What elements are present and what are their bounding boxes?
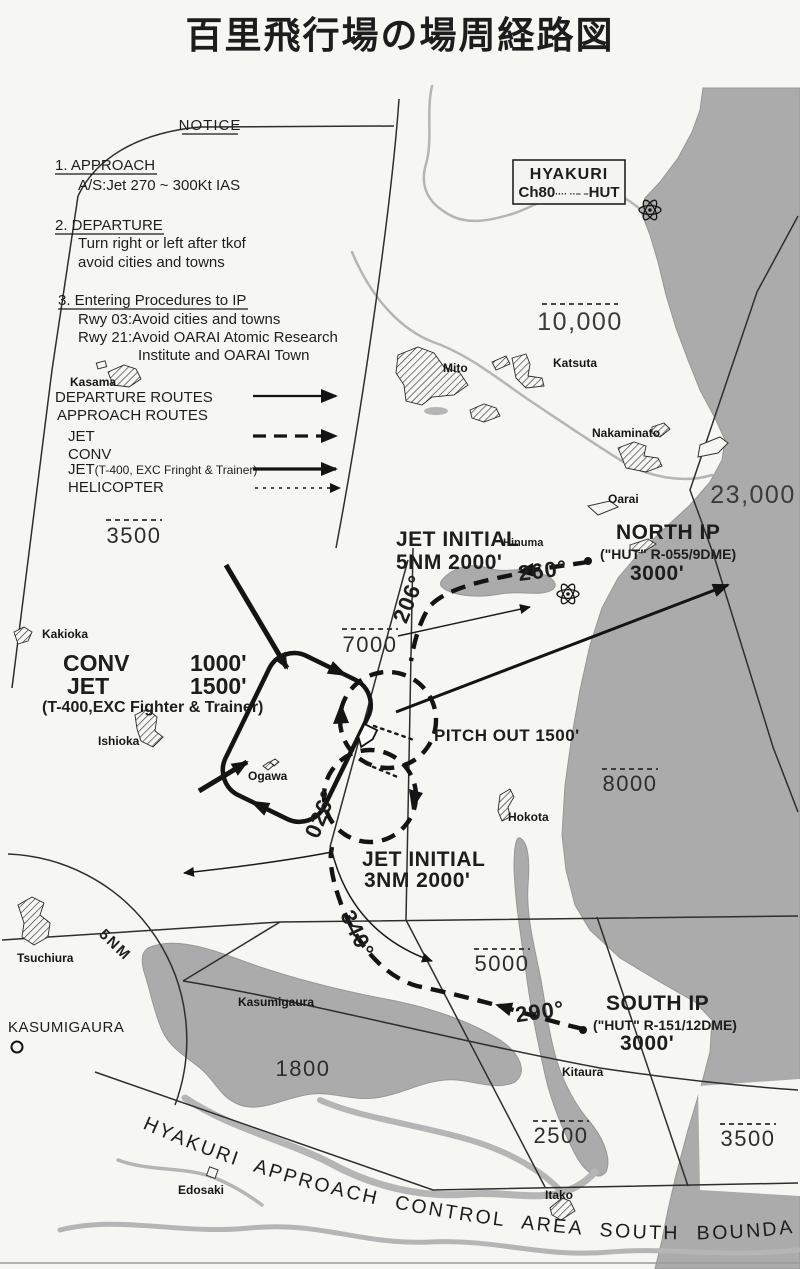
altitude-lake: 1800 bbox=[276, 1056, 331, 1081]
south-ip-fix-dot bbox=[579, 1026, 587, 1034]
north-ip-fix: ("HUT" R-055/9DME) bbox=[600, 546, 736, 562]
hinuma-label: Hinuma bbox=[503, 537, 544, 549]
navaid-name: HYAKURI bbox=[530, 166, 608, 183]
south-ip-name: SOUTH IP bbox=[606, 992, 709, 1015]
notice-entering-body2: Rwy 21:Avoid OARAI Atomic Research bbox=[78, 329, 338, 346]
katsuta-west-area bbox=[492, 356, 510, 370]
legend-departure-routes: DEPARTURE ROUTES bbox=[55, 389, 213, 406]
kakioka-label: Kakioka bbox=[42, 627, 88, 641]
jet-initial-north-line2: 5NM 2000' bbox=[396, 551, 502, 574]
kasumigaura-lake-label: Kasumigaura bbox=[238, 995, 314, 1009]
helicopter-route-east bbox=[398, 607, 530, 636]
notice-block: NOTICE 1. APPROACH A/S:Jet 270 ~ 300Kt I… bbox=[55, 117, 338, 364]
jet-initial-south-line2: 3NM 2000' bbox=[364, 869, 470, 892]
chart-canvas: NOTICE 1. APPROACH A/S:Jet 270 ~ 300Kt I… bbox=[0, 0, 800, 1269]
oarai-label: Oarai bbox=[608, 492, 639, 506]
north-ip-alt: 3000' bbox=[630, 562, 684, 585]
kakioka-symbol bbox=[14, 627, 32, 644]
kasama-label: Kasama bbox=[70, 375, 116, 389]
notice-heading: NOTICE bbox=[179, 117, 242, 134]
mito-town-area bbox=[396, 347, 468, 405]
notice-entering-title: 3. Entering Procedures to IP bbox=[58, 292, 246, 309]
altitude-south: 2500 bbox=[534, 1123, 589, 1148]
sector-line-top-vertical bbox=[336, 99, 399, 548]
nakaminato-town-area bbox=[618, 442, 662, 472]
jet-pattern-arrow-north bbox=[333, 703, 349, 724]
pattern-jet-alt: 1500' bbox=[190, 673, 247, 699]
route-legend: DEPARTURE ROUTES APPROACH ROUTES JET CON… bbox=[55, 389, 340, 496]
mito-suburb-area bbox=[470, 404, 500, 422]
heading-340: 340° bbox=[335, 906, 379, 961]
ogawa-label: Ogawa bbox=[248, 769, 288, 783]
notice-departure-body1: Turn right or left after tkof bbox=[78, 235, 247, 252]
edosaki-label: Edosaki bbox=[178, 1183, 224, 1197]
legend-helicopter: HELICOPTER bbox=[68, 479, 164, 496]
tsuchiura-label: Tsuchiura bbox=[17, 951, 74, 965]
heading-260: 260° bbox=[517, 555, 569, 586]
notice-entering-body3: Institute and OARAI Town bbox=[138, 347, 309, 364]
pitch-out-label: PITCH OUT 1500' bbox=[434, 726, 580, 745]
page-title: 百里飛行場の場周経路図 bbox=[186, 15, 615, 56]
legend-jet-t400: JET(T-400, EXC Fringht & Trainer) bbox=[68, 461, 257, 478]
nuclear-facility-icon-south bbox=[557, 582, 579, 605]
legend-jet: JET bbox=[68, 428, 95, 445]
jet-initial-south-line1: JET INITIAL bbox=[362, 848, 485, 871]
kasumigaura-base-label: KASUMIGAURA bbox=[8, 1019, 124, 1036]
mito-label: Mito bbox=[443, 361, 468, 375]
nakaminato-label: Nakaminato bbox=[592, 426, 660, 440]
hyakuri-airfield-traffic-pattern-chart: NOTICE 1. APPROACH A/S:Jet 270 ~ 300Kt I… bbox=[0, 0, 800, 1269]
notice-departure-title: 2. DEPARTURE bbox=[55, 217, 163, 234]
katsuta-town-area bbox=[512, 354, 544, 388]
kasama-symbol bbox=[96, 361, 106, 369]
altitude-sea-e: 8000 bbox=[603, 771, 658, 796]
kitaura-label: Kitaura bbox=[562, 1065, 604, 1079]
notice-departure-body2: avoid cities and towns bbox=[78, 254, 225, 271]
notice-approach-title: 1. APPROACH bbox=[55, 157, 155, 174]
pitchout-dotted-1 bbox=[374, 726, 414, 740]
altitude-se: 3500 bbox=[721, 1126, 776, 1151]
heading-026: 026° bbox=[300, 786, 342, 841]
lake-senba bbox=[424, 407, 448, 415]
ishioka-label: Ishioka bbox=[98, 734, 140, 748]
tsuchiura-town-area bbox=[18, 897, 50, 945]
altitude-sea-ne: 23,000 bbox=[710, 481, 795, 509]
hokota-label: Hokota bbox=[508, 810, 549, 824]
altitude-south-center: 5000 bbox=[475, 951, 530, 976]
katsuta-label: Katsuta bbox=[553, 356, 597, 370]
altitude-north: 10,000 bbox=[537, 308, 622, 336]
pattern-jet-label: JET bbox=[67, 673, 109, 699]
north-ip-fix-dot bbox=[584, 557, 592, 565]
notice-approach-body: A/S:Jet 270 ~ 300Kt IAS bbox=[78, 177, 240, 194]
kasumigaura-airbase-symbol bbox=[12, 1042, 23, 1053]
north-ip-name: NORTH IP bbox=[616, 521, 720, 544]
altitude-nw: 3500 bbox=[107, 523, 162, 548]
south-ip-alt: 3000' bbox=[620, 1032, 674, 1055]
helicopter-route-west bbox=[184, 852, 332, 873]
runway-symbol bbox=[355, 724, 377, 750]
jet-initial-north-line1: JET INITIAL bbox=[396, 528, 519, 551]
itako-label: Itako bbox=[545, 1188, 573, 1202]
lake-kasumigaura bbox=[142, 943, 521, 1107]
notice-entering-body1: Rwy 03:Avoid cities and towns bbox=[78, 311, 280, 328]
pattern-note: (T-400,EXC Fighter & Trainer) bbox=[42, 699, 263, 716]
altitude-center: 7000 bbox=[343, 632, 398, 657]
legend-approach-routes: APPROACH ROUTES bbox=[57, 407, 208, 424]
south-ip-fix: ("HUT" R-151/12DME) bbox=[593, 1017, 737, 1033]
